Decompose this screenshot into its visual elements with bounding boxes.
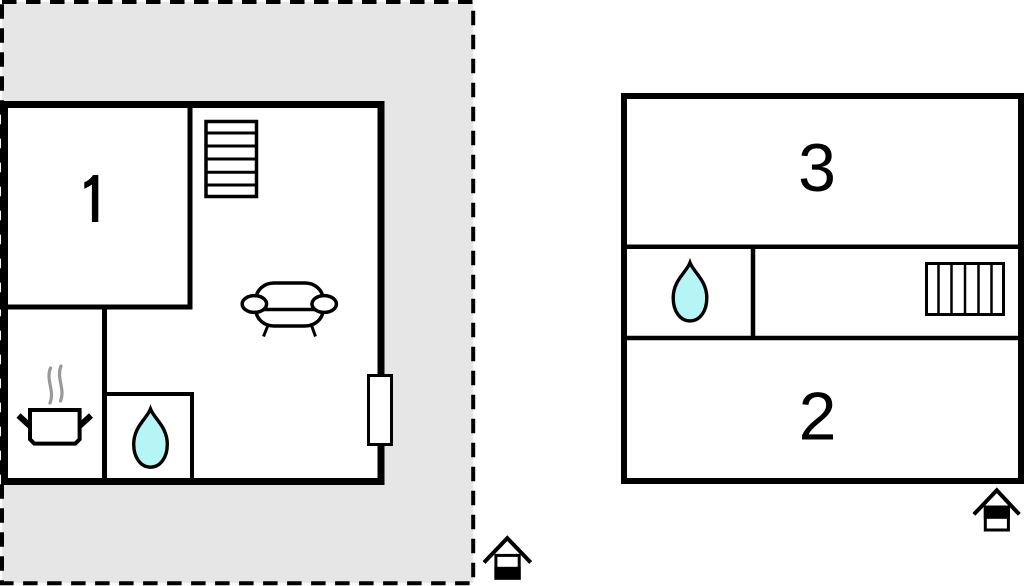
svg-text:2: 2 [799, 378, 837, 454]
svg-text:3: 3 [798, 130, 836, 206]
